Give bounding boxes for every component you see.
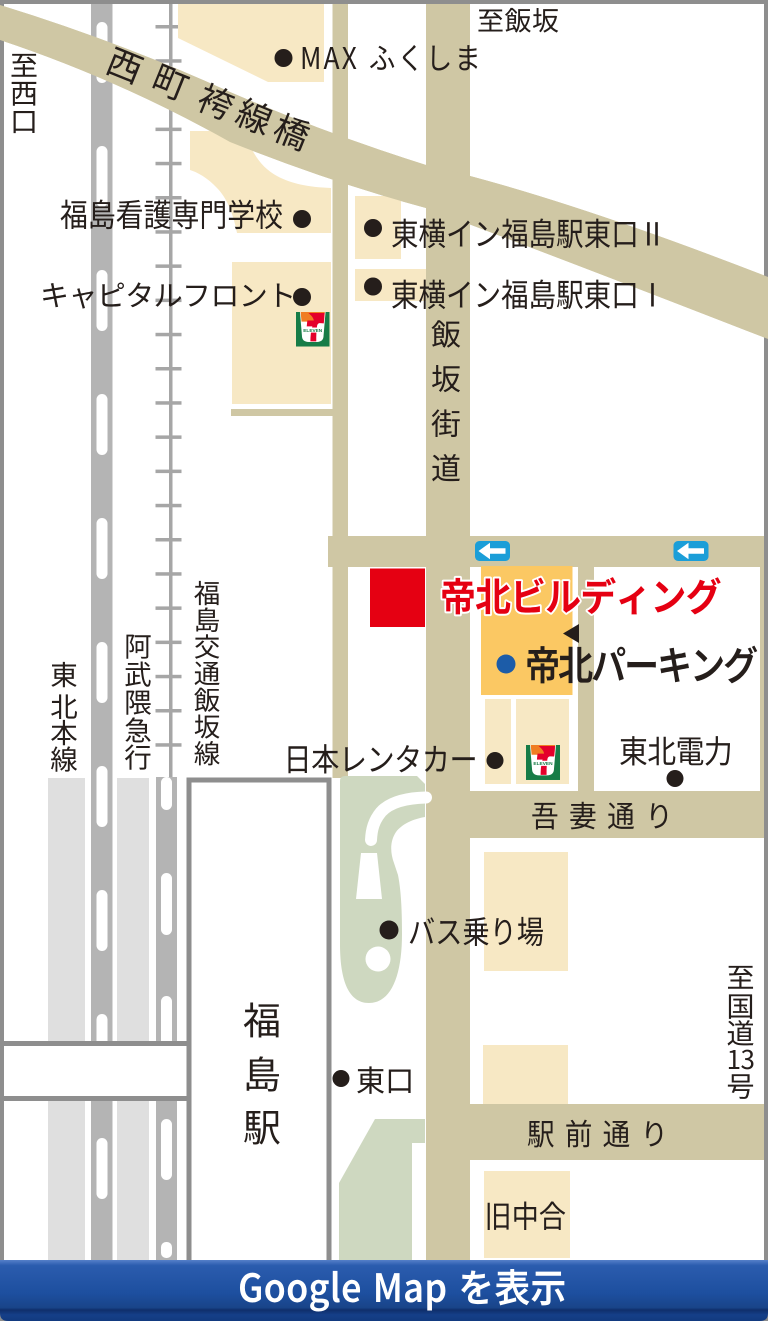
svg-text:ELEVEN: ELEVEN [303, 328, 322, 334]
svg-text:ELEVEN: ELEVEN [533, 761, 553, 767]
